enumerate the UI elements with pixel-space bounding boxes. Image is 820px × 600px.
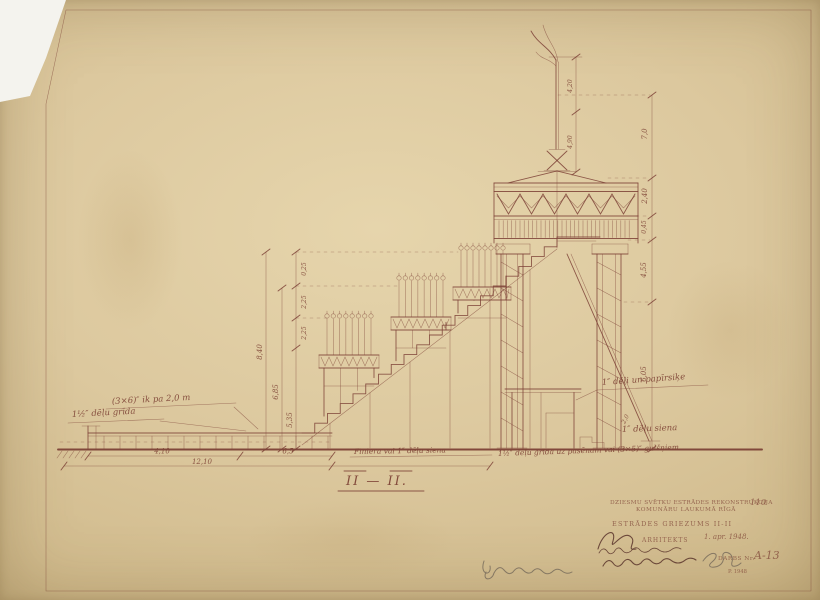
floor-note-left: 1½″ dēļu grīda <box>72 406 136 420</box>
dim-0-45: 0,45 <box>641 220 648 234</box>
title-block: DZIESMU SVĒTKU ESTRĀDES REKONSTRUKCIJA K… <box>596 496 801 591</box>
roof-note: 1″ dēļi un papīrsiķe <box>602 372 686 388</box>
drawing-number-label: DARBS Nr. <box>718 556 755 562</box>
pencil-signature-bottom <box>483 561 572 579</box>
main-tower <box>494 171 638 448</box>
joists-note: (3×6)″ ik pa 2,0 m <box>112 392 191 407</box>
dim-12-10: 12,10 <box>192 458 213 466</box>
dim-6-85: 6,85 <box>272 384 280 400</box>
diagonal-brace <box>567 254 660 449</box>
dim-flag-4-90: 4,90 <box>567 135 574 150</box>
dim-8-40: 8,40 <box>256 344 264 360</box>
finial-and-flagpole <box>531 25 582 171</box>
section-label-text: II — II. <box>345 474 408 489</box>
drawing-number: A-13 <box>754 549 780 562</box>
wall-note-right: 1″ dēļu siena <box>622 423 678 435</box>
dim-2-40: 2,40 <box>641 188 649 205</box>
section-label: II — II. <box>338 471 424 491</box>
project-title-line1: DZIESMU SVĒTKU ESTRĀDES REKONSTRUKCIJA <box>610 500 762 506</box>
project-title-line2: KOMUNĀRU LAUKUMĀ RĪGĀ <box>610 507 762 513</box>
dim-4-10: 4,10 <box>153 448 170 456</box>
dim-0-25: 0,25 <box>301 262 308 276</box>
dim-5-35: 5,35 <box>286 412 294 428</box>
sheet-number: 110 <box>750 498 766 508</box>
base-hut <box>505 389 604 448</box>
floor-note-right: 1½″ dēļu grīda uz pasēnam vai (3×5)″ gul… <box>498 443 679 458</box>
wall-note-center: Finiera vai 1″ dēļu siena <box>353 445 446 456</box>
dim-6-5: 6,5 <box>282 448 294 456</box>
stamp-small: P. 1948 <box>728 569 747 575</box>
date: 1. apr. 1948. <box>704 533 749 541</box>
annotations: (3×6)″ ik pa 2,0 m 1½″ dēļu grīda Finier… <box>68 372 708 458</box>
generated-linework <box>57 54 656 470</box>
drawing-title: ESTRĀDES GRIEZUMS II-II <box>612 520 732 528</box>
dim-7-0: 7,0 <box>641 128 649 140</box>
dim-2-25b: 2,25 <box>301 326 308 341</box>
dim-2-25a: 2,25 <box>301 295 308 310</box>
role-label: ARHITEKTS <box>642 537 688 544</box>
dim-4-55: 4,55 <box>640 262 648 279</box>
dim-flag-4-20: 4,20 <box>567 79 574 94</box>
